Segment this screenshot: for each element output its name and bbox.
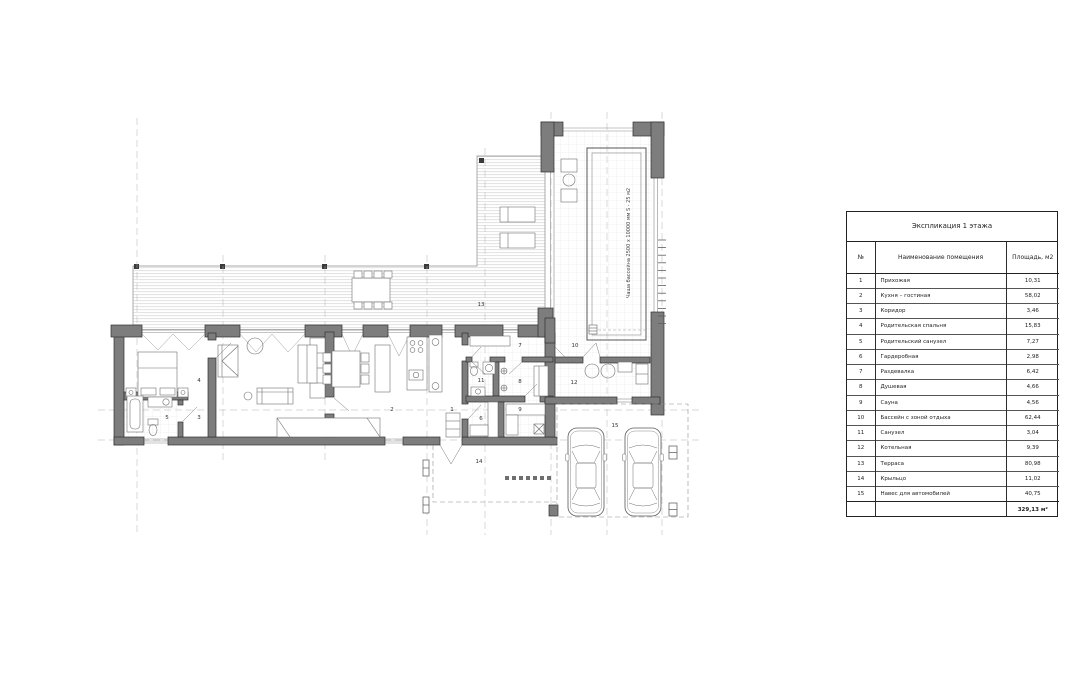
outdoor-chair [384, 271, 392, 278]
kitchen-sink [409, 370, 423, 380]
toilet [148, 419, 158, 425]
outdoor-chair [384, 302, 392, 309]
room-area: 2,98 [1006, 349, 1059, 364]
col-header-area: Площадь, м2 [1006, 242, 1059, 273]
row-number: 11 [847, 426, 875, 441]
wardrobe-cabinet [470, 425, 488, 436]
room-name: Душевая [875, 380, 1006, 395]
outdoor-chair [374, 302, 382, 309]
row-number: 12 [847, 441, 875, 456]
room-label-2: 2 [390, 407, 394, 413]
kitchen-island [375, 345, 390, 392]
table-row: 12Котельная9,39 [847, 441, 1059, 456]
room-label-11: 11 [478, 378, 485, 384]
room-area: 15,83 [1006, 319, 1059, 334]
room-area: 62,44 [1006, 410, 1059, 425]
table-row: 11Санузел3,04 [847, 426, 1059, 441]
table-body: 1Прихожая10,312Кухня – гостиная58,023Кор… [847, 273, 1059, 502]
chair [361, 375, 369, 384]
terrace-column [479, 158, 484, 163]
sauna-bench [506, 415, 518, 435]
table-row: 15Навес для автомобилей40,75 [847, 487, 1059, 502]
table-row: 14Крыльцо11,02 [847, 471, 1059, 486]
pillow [160, 388, 175, 395]
row-number: 10 [847, 410, 875, 425]
row-number: 9 [847, 395, 875, 410]
terrace-column [322, 264, 327, 269]
row-number: 1 [847, 273, 875, 288]
nightstand [178, 388, 188, 397]
washing-machine [483, 362, 495, 374]
sun-lounger [500, 233, 535, 248]
chair [323, 375, 331, 384]
chair [361, 364, 369, 373]
room-name: Котельная [875, 441, 1006, 456]
nightstand [126, 388, 136, 397]
carport-column [669, 503, 677, 516]
col-header-number: № [847, 242, 875, 273]
porch-pavers [505, 476, 551, 480]
room-label-9: 9 [518, 407, 522, 413]
pool-ladder [589, 325, 597, 334]
room-name: Раздевалка [875, 365, 1006, 380]
drawing-sheet: 1 2 3 4 5 6 7 8 9 10 11 12 13 14 15 Чаша… [0, 0, 1065, 675]
room-name: Навес для автомобилей [875, 487, 1006, 502]
porch-step-marker [423, 460, 429, 513]
room-name: Родительская спальня [875, 319, 1006, 334]
explication-table: Экспликация 1 этажа № Наименование помещ… [846, 211, 1058, 517]
room-area: 4,66 [1006, 380, 1059, 395]
room-area: 4,56 [1006, 395, 1059, 410]
col-header-name: Наименование помещения [875, 242, 1006, 273]
room-area: 58,02 [1006, 288, 1059, 303]
total-area: 329,13 м² [1006, 502, 1059, 517]
row-number: 5 [847, 334, 875, 349]
row-number: 14 [847, 471, 875, 486]
bench [470, 336, 510, 346]
kitchen-counter [407, 337, 427, 390]
room-label-4: 4 [197, 378, 201, 384]
outdoor-chair [354, 302, 362, 309]
room-area: 40,75 [1006, 487, 1059, 502]
chair [323, 353, 331, 362]
room-name: Крыльцо [875, 471, 1006, 486]
row-number: 13 [847, 456, 875, 471]
table-row: 4Родительская спальня15,83 [847, 319, 1059, 334]
outdoor-table [352, 278, 390, 302]
table-row: 1Прихожая10,31 [847, 273, 1059, 288]
bedroom-furniture [126, 338, 325, 398]
table-row: 5Родительский санузел7,27 [847, 334, 1059, 349]
row-number: 7 [847, 365, 875, 380]
boiler-unit [618, 362, 632, 372]
room-name: Прихожая [875, 273, 1006, 288]
carport [557, 404, 688, 517]
wardrobe [218, 345, 238, 377]
entry-furniture [446, 413, 460, 437]
kitchen-counter-2 [429, 335, 442, 392]
room-label-12: 12 [571, 380, 578, 386]
room-label-14: 14 [476, 459, 483, 465]
row-number: 3 [847, 304, 875, 319]
room-name: Родительский санузел [875, 334, 1006, 349]
room-area: 7,27 [1006, 334, 1059, 349]
outdoor-chair [364, 302, 372, 309]
room-label-15: 15 [612, 423, 619, 429]
terrace-column [134, 264, 139, 269]
chair [361, 353, 369, 362]
bookshelf [298, 345, 317, 383]
table-header: № Наименование помещения Площадь, м2 [847, 242, 1059, 273]
outdoor-chair [364, 271, 372, 278]
outdoor-chair [374, 271, 382, 278]
hall-cabinet [446, 413, 460, 437]
sofa [257, 388, 293, 404]
sun-lounger [500, 207, 535, 222]
car-1 [566, 428, 607, 516]
pool-dimensions-label: Чаша бассейна 2500 х 10000 мм S - 25 м2 [625, 188, 632, 298]
table-row: 10Бассейн с зоной отдыха62,44 [847, 410, 1059, 425]
table-row: 2Кухня – гостиная58,02 [847, 288, 1059, 303]
room-label-1: 1 [450, 407, 454, 413]
total-empty-cell [875, 502, 1006, 517]
row-number: 8 [847, 380, 875, 395]
row-number: 6 [847, 349, 875, 364]
pool-chair [561, 159, 577, 172]
carport-column [669, 446, 677, 459]
side-table [244, 392, 252, 400]
room-label-7: 7 [518, 343, 522, 349]
room-label-3: 3 [197, 415, 201, 421]
room-name: Бассейн с зоной отдыха [875, 410, 1006, 425]
pool-chair [561, 189, 577, 202]
table-title: Экспликация 1 этажа [847, 212, 1057, 242]
table-row: 3Коридор3,46 [847, 304, 1059, 319]
outdoor-chair [354, 271, 362, 278]
dining-table [332, 351, 360, 387]
room-name: Санузел [875, 426, 1006, 441]
room-name: Терраса [875, 456, 1006, 471]
room-name: Коридор [875, 304, 1006, 319]
room-area: 3,04 [1006, 426, 1059, 441]
room-area: 6,42 [1006, 365, 1059, 380]
room-label-5: 5 [165, 415, 169, 421]
table-row: 13Терраса80,98 [847, 456, 1059, 471]
room-area: 3,46 [1006, 304, 1059, 319]
room-label-8: 8 [518, 379, 522, 385]
total-empty-cell [847, 502, 875, 517]
terrace-column [220, 264, 225, 269]
table-footer: 329,13 м² [847, 502, 1059, 517]
plant [247, 338, 263, 354]
storage-bench [277, 418, 380, 437]
room-area: 9,39 [1006, 441, 1059, 456]
row-number: 2 [847, 288, 875, 303]
porch [423, 445, 557, 513]
room-label-13: 13 [478, 302, 485, 308]
room-area: 10,31 [1006, 273, 1059, 288]
wc-sink [471, 387, 485, 396]
table-row: 6Гардеробная2,98 [847, 349, 1059, 364]
vanity [148, 397, 172, 407]
wardrobe-shelf [488, 402, 498, 437]
sauna-bench [506, 404, 545, 415]
room-area: 11,02 [1006, 471, 1059, 486]
table-row: 9Сауна4,56 [847, 395, 1059, 410]
pillow [141, 388, 156, 395]
room-name: Гардеробная [875, 349, 1006, 364]
room-name: Сауна [875, 395, 1006, 410]
room-label-6: 6 [479, 416, 483, 422]
row-number: 15 [847, 487, 875, 502]
room-name: Кухня – гостиная [875, 288, 1006, 303]
car-2 [623, 428, 664, 516]
shower-bench [534, 366, 548, 396]
row-number: 4 [847, 319, 875, 334]
table-row: 8Душевая4,66 [847, 380, 1059, 395]
room-label-10: 10 [572, 343, 579, 349]
table-row: 7Раздевалка6,42 [847, 365, 1059, 380]
chair [323, 364, 331, 373]
room-area: 80,98 [1006, 456, 1059, 471]
terrace-column [424, 264, 429, 269]
living-kitchen-furniture [244, 335, 442, 437]
